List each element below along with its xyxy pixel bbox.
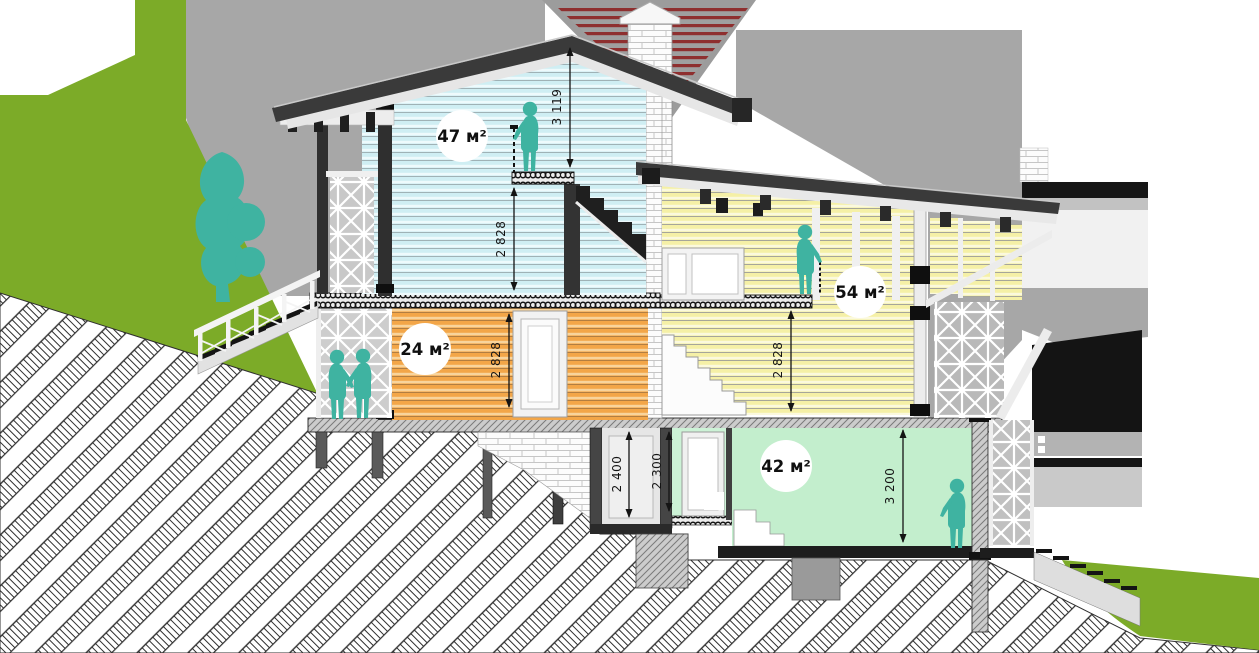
foundation-pier (372, 432, 383, 478)
area-label-text: 47 м² (437, 127, 486, 146)
foundation-pier (316, 432, 327, 468)
basement-right-wall (972, 418, 988, 558)
trellis-frame (989, 420, 993, 546)
trellis-lattice (330, 175, 374, 293)
trellis-frame (1030, 420, 1034, 546)
black-band-2 (1032, 458, 1142, 467)
terrace-panel (930, 218, 958, 294)
railing-post (310, 281, 315, 309)
trellis-lattice (934, 302, 1004, 418)
post-connector (910, 404, 930, 416)
stair-tread (1121, 586, 1137, 590)
cross-section-stage: 3 119 2 828 2 828 2 828 2 400 2 300 3 20… (0, 0, 1259, 653)
area-label-text: 24 м² (400, 340, 449, 359)
window-pane (668, 254, 686, 294)
dimension-text: 2 828 (489, 342, 503, 379)
railing-post (254, 307, 259, 335)
rafter (880, 206, 891, 221)
black-block (1032, 330, 1142, 432)
tree (227, 203, 265, 241)
dimension-text: 3 119 (550, 89, 564, 126)
rafter (760, 195, 771, 210)
dimension-text: 2 400 (610, 456, 624, 493)
area-label-basement: 42 м² (760, 440, 812, 492)
stair-landing (512, 172, 574, 184)
floor-strip-level1 (310, 293, 660, 308)
gray-band-2 (1032, 432, 1142, 456)
stair-tread (1087, 571, 1103, 575)
gray-band-3 (1032, 467, 1142, 507)
white-dot (1038, 446, 1045, 453)
cross-section-drawing: 3 119 2 828 2 828 2 828 2 400 2 300 3 20… (0, 0, 1259, 653)
eave-end-block (732, 98, 752, 122)
footing-block (636, 534, 688, 588)
footing-block (792, 558, 840, 600)
shaft-wall (590, 428, 602, 528)
trellis-rail (326, 171, 378, 177)
under-deck-trellis (316, 300, 392, 418)
interior-door-panel (528, 326, 552, 402)
partition-wall (726, 428, 733, 520)
rafter (1000, 217, 1011, 232)
stair-tread (1053, 556, 1069, 560)
basement-floor (718, 546, 980, 558)
door-sill (704, 492, 724, 510)
center-brick-wall (646, 88, 662, 418)
retaining-band (980, 548, 1034, 558)
dimension-text: 2 828 (771, 342, 785, 379)
area-label-text: 42 м² (761, 457, 810, 476)
rafter (700, 189, 711, 204)
brick-patch (1020, 148, 1048, 182)
roof-post (892, 216, 900, 300)
area-label-middle-right: 54 м² (834, 266, 886, 318)
eave-bracket (366, 112, 375, 132)
area-label-middle-left: 24 м² (399, 323, 451, 375)
rafter-block (716, 198, 728, 213)
railing-post (198, 333, 203, 361)
trellis-lattice (992, 420, 1032, 546)
black-band (1022, 182, 1148, 198)
railing-post (282, 294, 287, 322)
basement-right-trellis (989, 420, 1034, 546)
white-dot (1038, 436, 1045, 443)
corridor-floor (672, 516, 732, 525)
railing-knob (510, 125, 518, 129)
stair-tread (1070, 564, 1086, 568)
stair-tread (1104, 579, 1120, 583)
balcony-corner-post (317, 112, 328, 294)
area-label-attic: 47 м² (436, 110, 488, 162)
railing-post (226, 320, 231, 348)
trellis-lattice (318, 300, 392, 418)
foundation-below (972, 560, 988, 632)
dimension-text: 2 300 (650, 453, 664, 490)
rafter (820, 200, 831, 215)
tree (235, 247, 265, 277)
post-connector (910, 306, 930, 320)
shaft-base (590, 524, 672, 534)
stair-tread (1036, 549, 1052, 553)
area-label-text: 54 м² (835, 283, 884, 302)
wall-cap (376, 284, 394, 293)
rafter (940, 212, 951, 227)
shed-roof-end (642, 168, 660, 184)
cut-wall-left-attic (378, 102, 392, 296)
window-pane (692, 254, 738, 294)
dimension-text: 3 200 (883, 468, 897, 505)
dimension-text: 2 828 (494, 221, 508, 258)
balcony-trellis (326, 171, 378, 293)
post-connector (910, 266, 930, 284)
terrace-post-small (990, 221, 995, 301)
